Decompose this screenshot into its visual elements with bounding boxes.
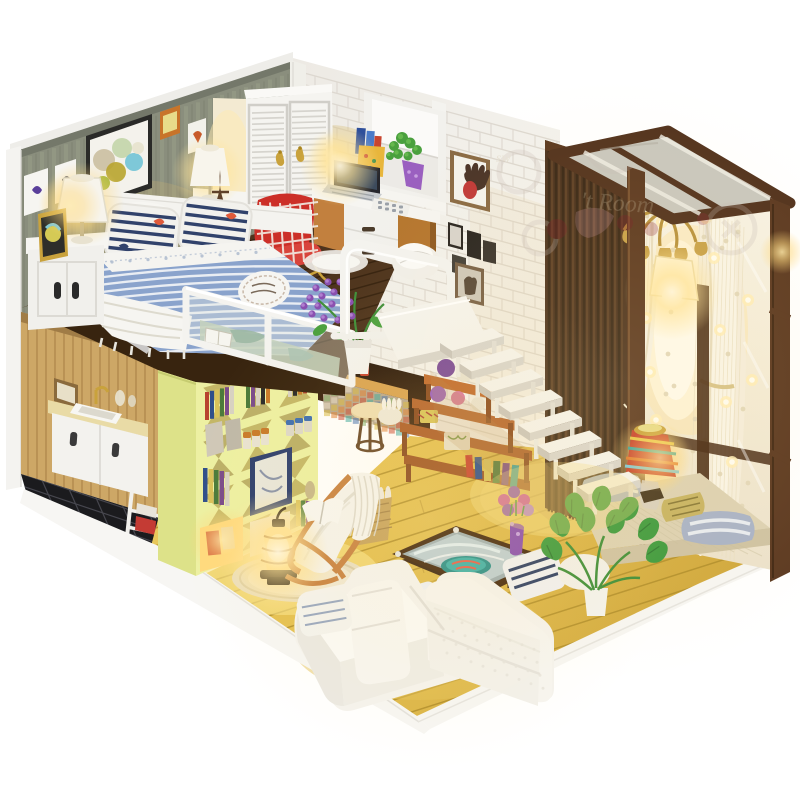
svg-text:sw: sw bbox=[496, 151, 511, 166]
svg-text:'t Room: 't Room bbox=[580, 188, 655, 219]
